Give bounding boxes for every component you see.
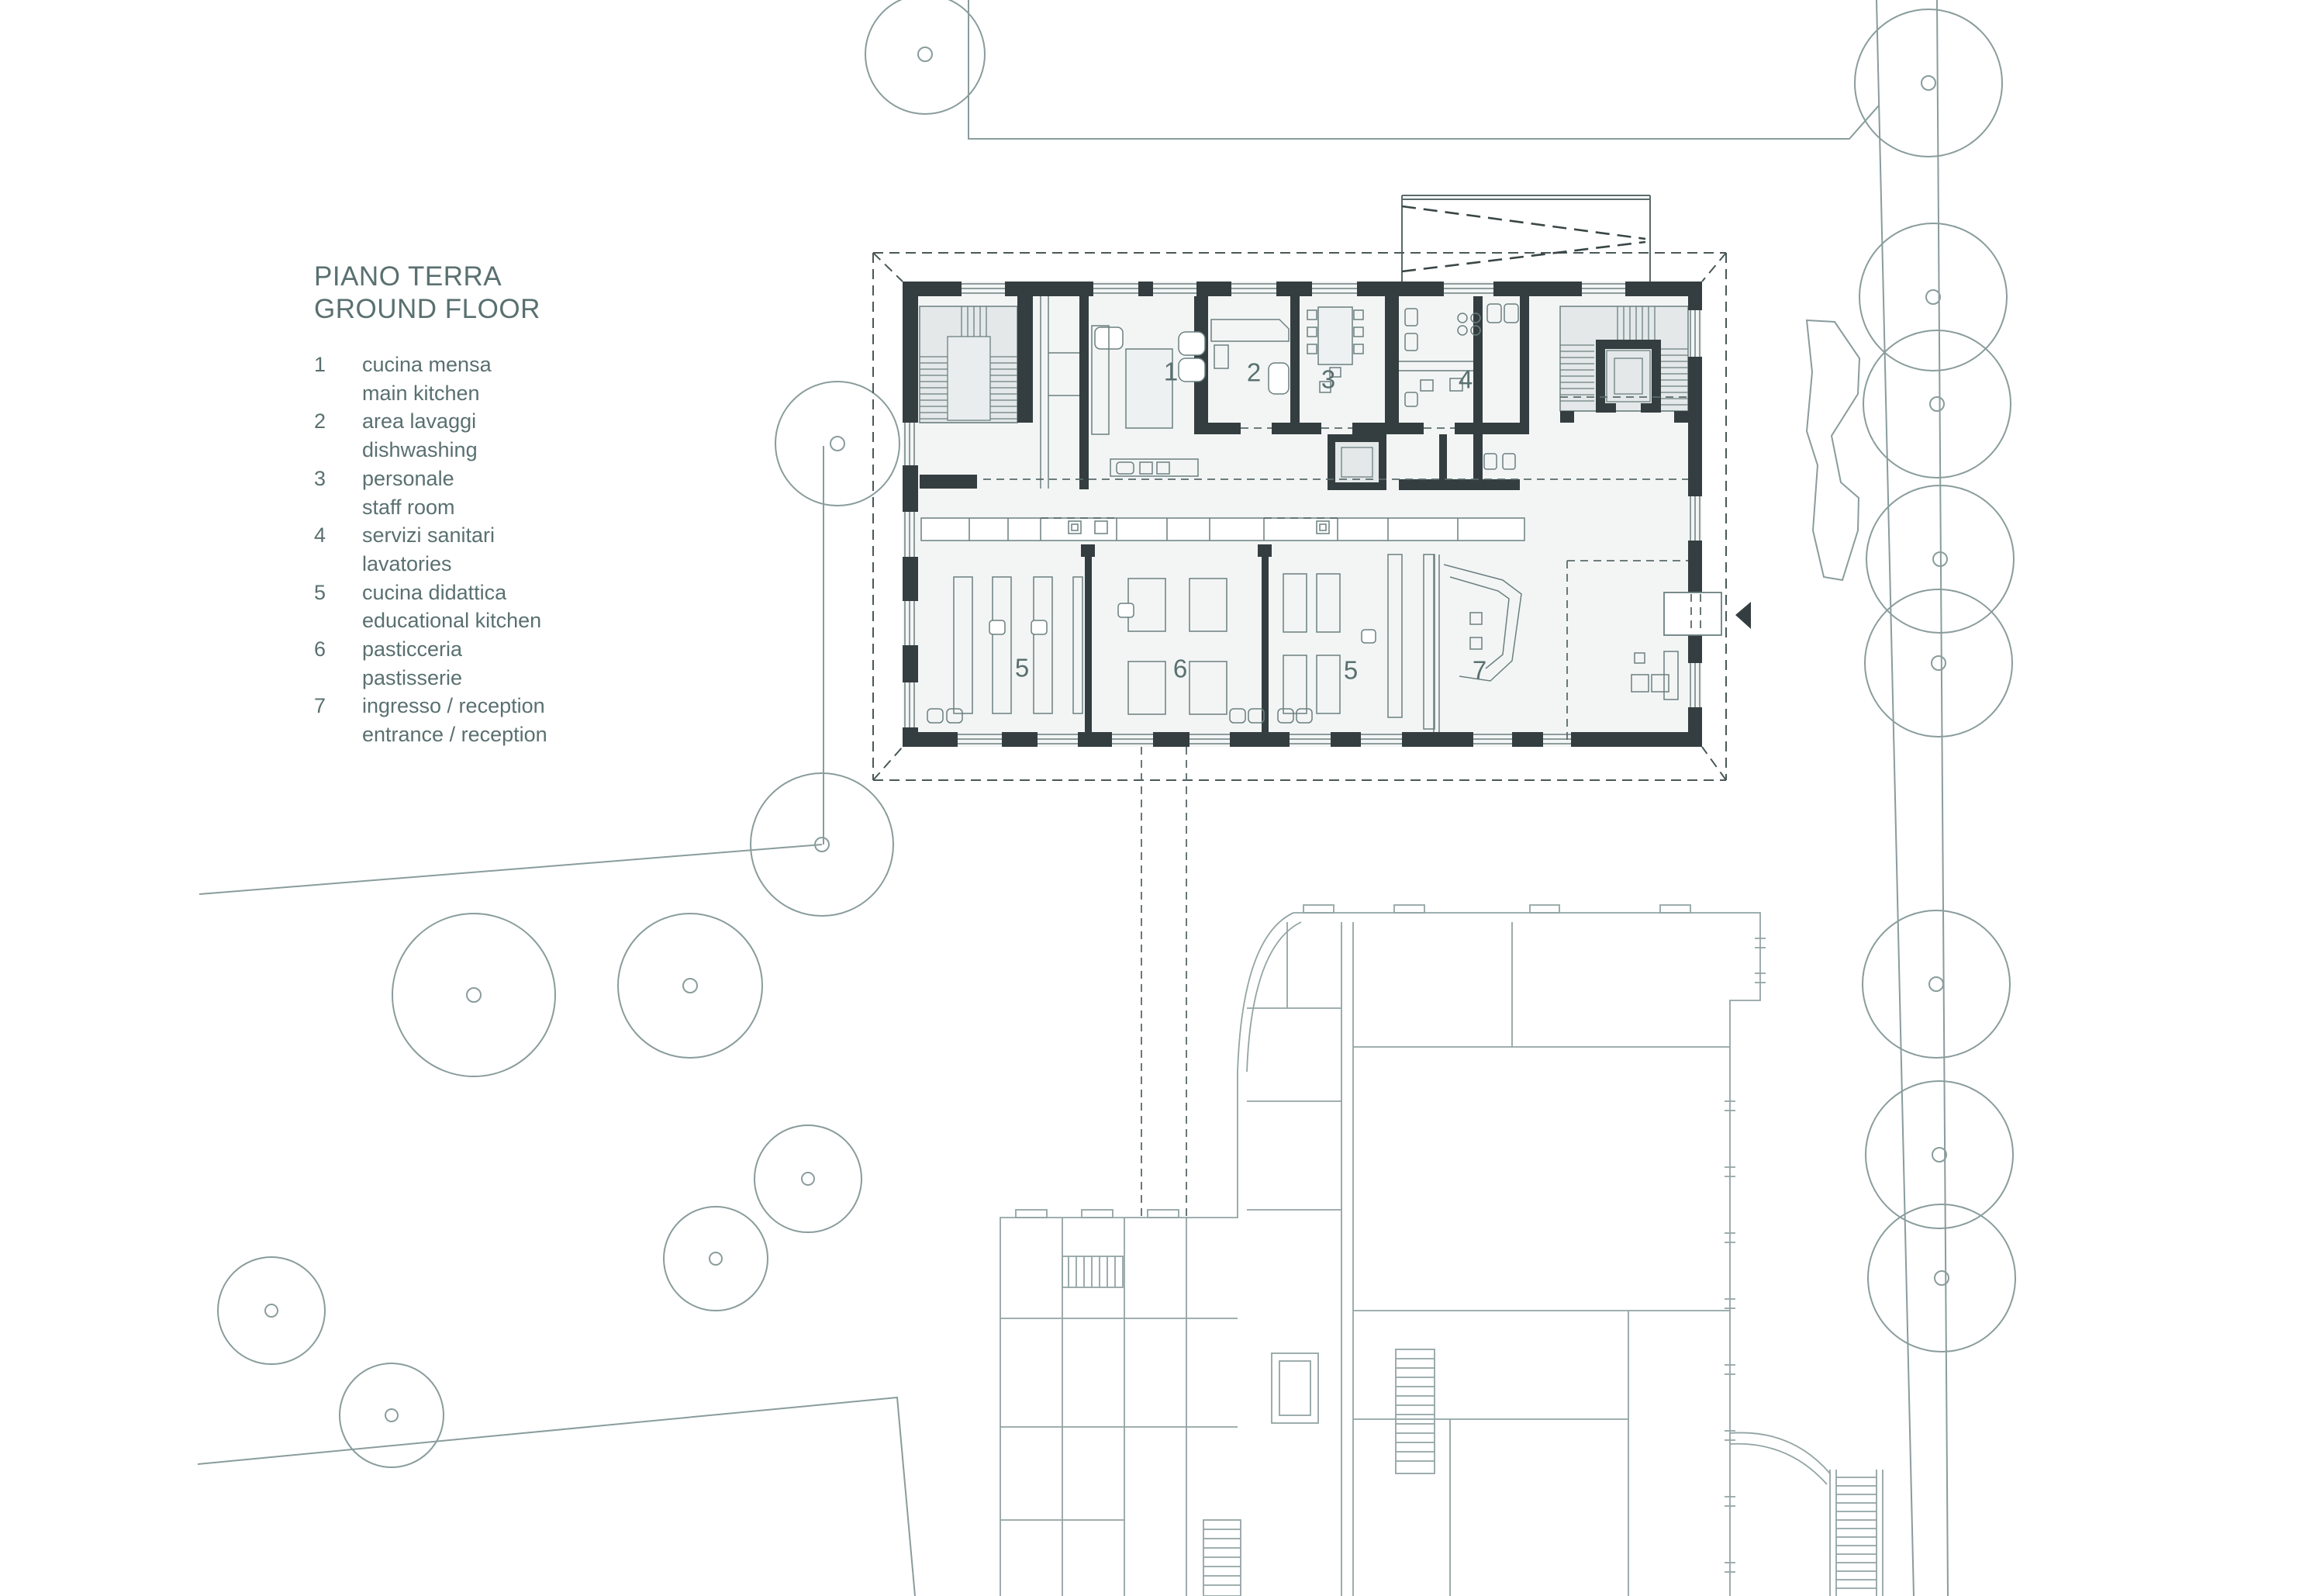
tree <box>218 1257 325 1364</box>
legend-number: 2 <box>314 407 362 436</box>
site-boundary <box>198 0 1879 1596</box>
legend-number: 1 <box>314 351 362 379</box>
external-stair <box>1730 1432 1883 1596</box>
legend-label-it: cucina mensa <box>362 351 748 379</box>
room-label-3: 3 <box>1321 367 1335 392</box>
legend-number: 4 <box>314 521 362 550</box>
legend-number: 3 <box>314 465 362 493</box>
planting-bed-outline <box>1807 320 1859 580</box>
staff-table <box>1318 307 1352 364</box>
old-elevator <box>1272 1353 1318 1423</box>
page-title: PIANO TERRA GROUND FLOOR <box>314 261 540 326</box>
legend-number: 7 <box>314 692 362 720</box>
site-plan-sheet: PIANO TERRA GROUND FLOOR 1 cucina mensa … <box>0 0 2303 1596</box>
legend-item: 1 cucina mensa main kitchen <box>314 351 748 407</box>
room-label-2: 2 <box>1247 360 1261 385</box>
tree <box>775 382 899 506</box>
legend-label-en: staff room <box>362 493 748 522</box>
canopy <box>1402 195 1650 282</box>
legend-label-en: dishwashing <box>362 436 748 465</box>
link-dashed-lines <box>1141 747 1186 1218</box>
room-label-5a: 5 <box>1015 655 1029 681</box>
tree <box>340 1363 444 1467</box>
title-italian: PIANO TERRA <box>314 261 540 293</box>
entrance-arrow-icon <box>1735 602 1751 629</box>
legend-number: 5 <box>314 579 362 607</box>
room-label-7: 7 <box>1473 658 1486 683</box>
title-english: GROUND FLOOR <box>314 293 540 326</box>
serving-counter <box>921 518 1524 541</box>
legend-item: 7 ingresso / reception entrance / recept… <box>314 692 748 748</box>
legend-item: 5 cucina didattica educational kitchen <box>314 579 748 635</box>
legend-item: 4 servizi sanitari lavatories <box>314 521 748 578</box>
legend-number: 6 <box>314 635 362 664</box>
new-building-plan <box>903 282 1751 747</box>
legend-label-it: personale <box>362 465 748 493</box>
room-label-6: 6 <box>1173 656 1187 682</box>
site-plan-drawing <box>0 0 2303 1596</box>
tree <box>1868 1204 2015 1352</box>
legend-label-en: lavatories <box>362 550 748 579</box>
canopy-projection <box>1402 206 1645 271</box>
west-boundary-line <box>199 845 822 894</box>
entrance <box>1664 592 1751 635</box>
tree <box>754 1125 861 1232</box>
legend-item: 3 personale staff room <box>314 465 748 521</box>
legend-label-it: ingresso / reception <box>362 692 748 720</box>
southwest-boundary-line <box>198 1397 915 1596</box>
old-stair-icon <box>1203 1520 1241 1596</box>
legend: 1 cucina mensa main kitchen 2 area lavag… <box>314 351 748 749</box>
legend-item: 6 pasticceria pastisserie <box>314 635 748 692</box>
legend-label-en: pastisserie <box>362 664 748 693</box>
legend-label-it: servizi sanitari <box>362 521 748 550</box>
old-stair-icon <box>1062 1256 1123 1287</box>
legend-label-it: area lavaggi <box>362 407 748 436</box>
room-label-4: 4 <box>1459 367 1473 392</box>
room-label-5b: 5 <box>1344 658 1358 683</box>
legend-label-it: cucina didattica <box>362 579 748 607</box>
north-boundary-line <box>969 0 1879 139</box>
legend-label-en: entrance / reception <box>362 720 748 749</box>
old-stair-icon <box>1396 1349 1435 1473</box>
tree <box>1855 9 2002 157</box>
legend-item: 2 area lavaggi dishwashing <box>314 407 748 464</box>
legend-label-en: main kitchen <box>362 379 748 408</box>
tree <box>664 1207 768 1311</box>
legend-label-en: educational kitchen <box>362 606 748 635</box>
tree <box>1863 910 2010 1058</box>
old-building-plan <box>1000 905 1883 1596</box>
legend-label-it: pasticceria <box>362 635 748 664</box>
tree <box>1866 1081 2013 1228</box>
tree <box>392 914 555 1076</box>
room-label-1: 1 <box>1164 359 1178 385</box>
tree <box>1865 589 2012 737</box>
tree <box>618 914 762 1058</box>
tree <box>865 0 985 114</box>
